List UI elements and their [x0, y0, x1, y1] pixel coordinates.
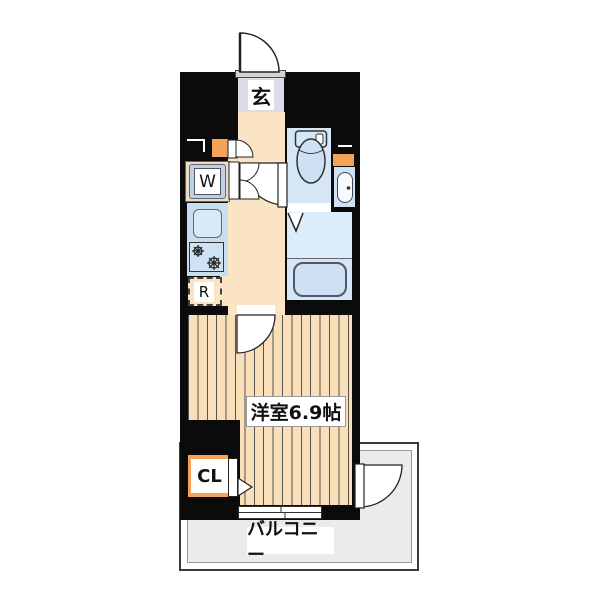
- hallway-upper: [238, 112, 285, 142]
- entrance-door-swing-icon: [240, 33, 279, 72]
- washer-label: W: [194, 168, 221, 195]
- wall-notch-left-h: [187, 139, 204, 141]
- bathtub-icon: [293, 262, 347, 297]
- kitchen-sink-icon: [193, 209, 222, 238]
- toilet-threshold: [287, 203, 331, 212]
- closet-label: CL: [188, 455, 228, 497]
- washbasin-icon: [337, 172, 353, 203]
- refrigerator-label: R: [194, 282, 214, 302]
- balcony-label: バルコニー: [247, 527, 334, 554]
- shoe-cabinet: [212, 139, 228, 157]
- entrance-label: 玄: [248, 80, 274, 110]
- stove-icon: [189, 242, 224, 272]
- floor-plan: W R CL: [0, 0, 600, 600]
- toilet-room: [287, 128, 331, 209]
- hallway-main: [228, 140, 285, 315]
- room-door-opening: [237, 305, 275, 315]
- wall-notch-left-v: [203, 139, 205, 152]
- wall-notch-right-h: [338, 145, 352, 147]
- storage-cabinet: [333, 154, 354, 166]
- bathroom-floor: [287, 212, 352, 258]
- entrance-step: [235, 70, 286, 78]
- closet-door-leaf: [228, 458, 238, 497]
- room-size-label: 洋室6.9帖: [246, 396, 346, 427]
